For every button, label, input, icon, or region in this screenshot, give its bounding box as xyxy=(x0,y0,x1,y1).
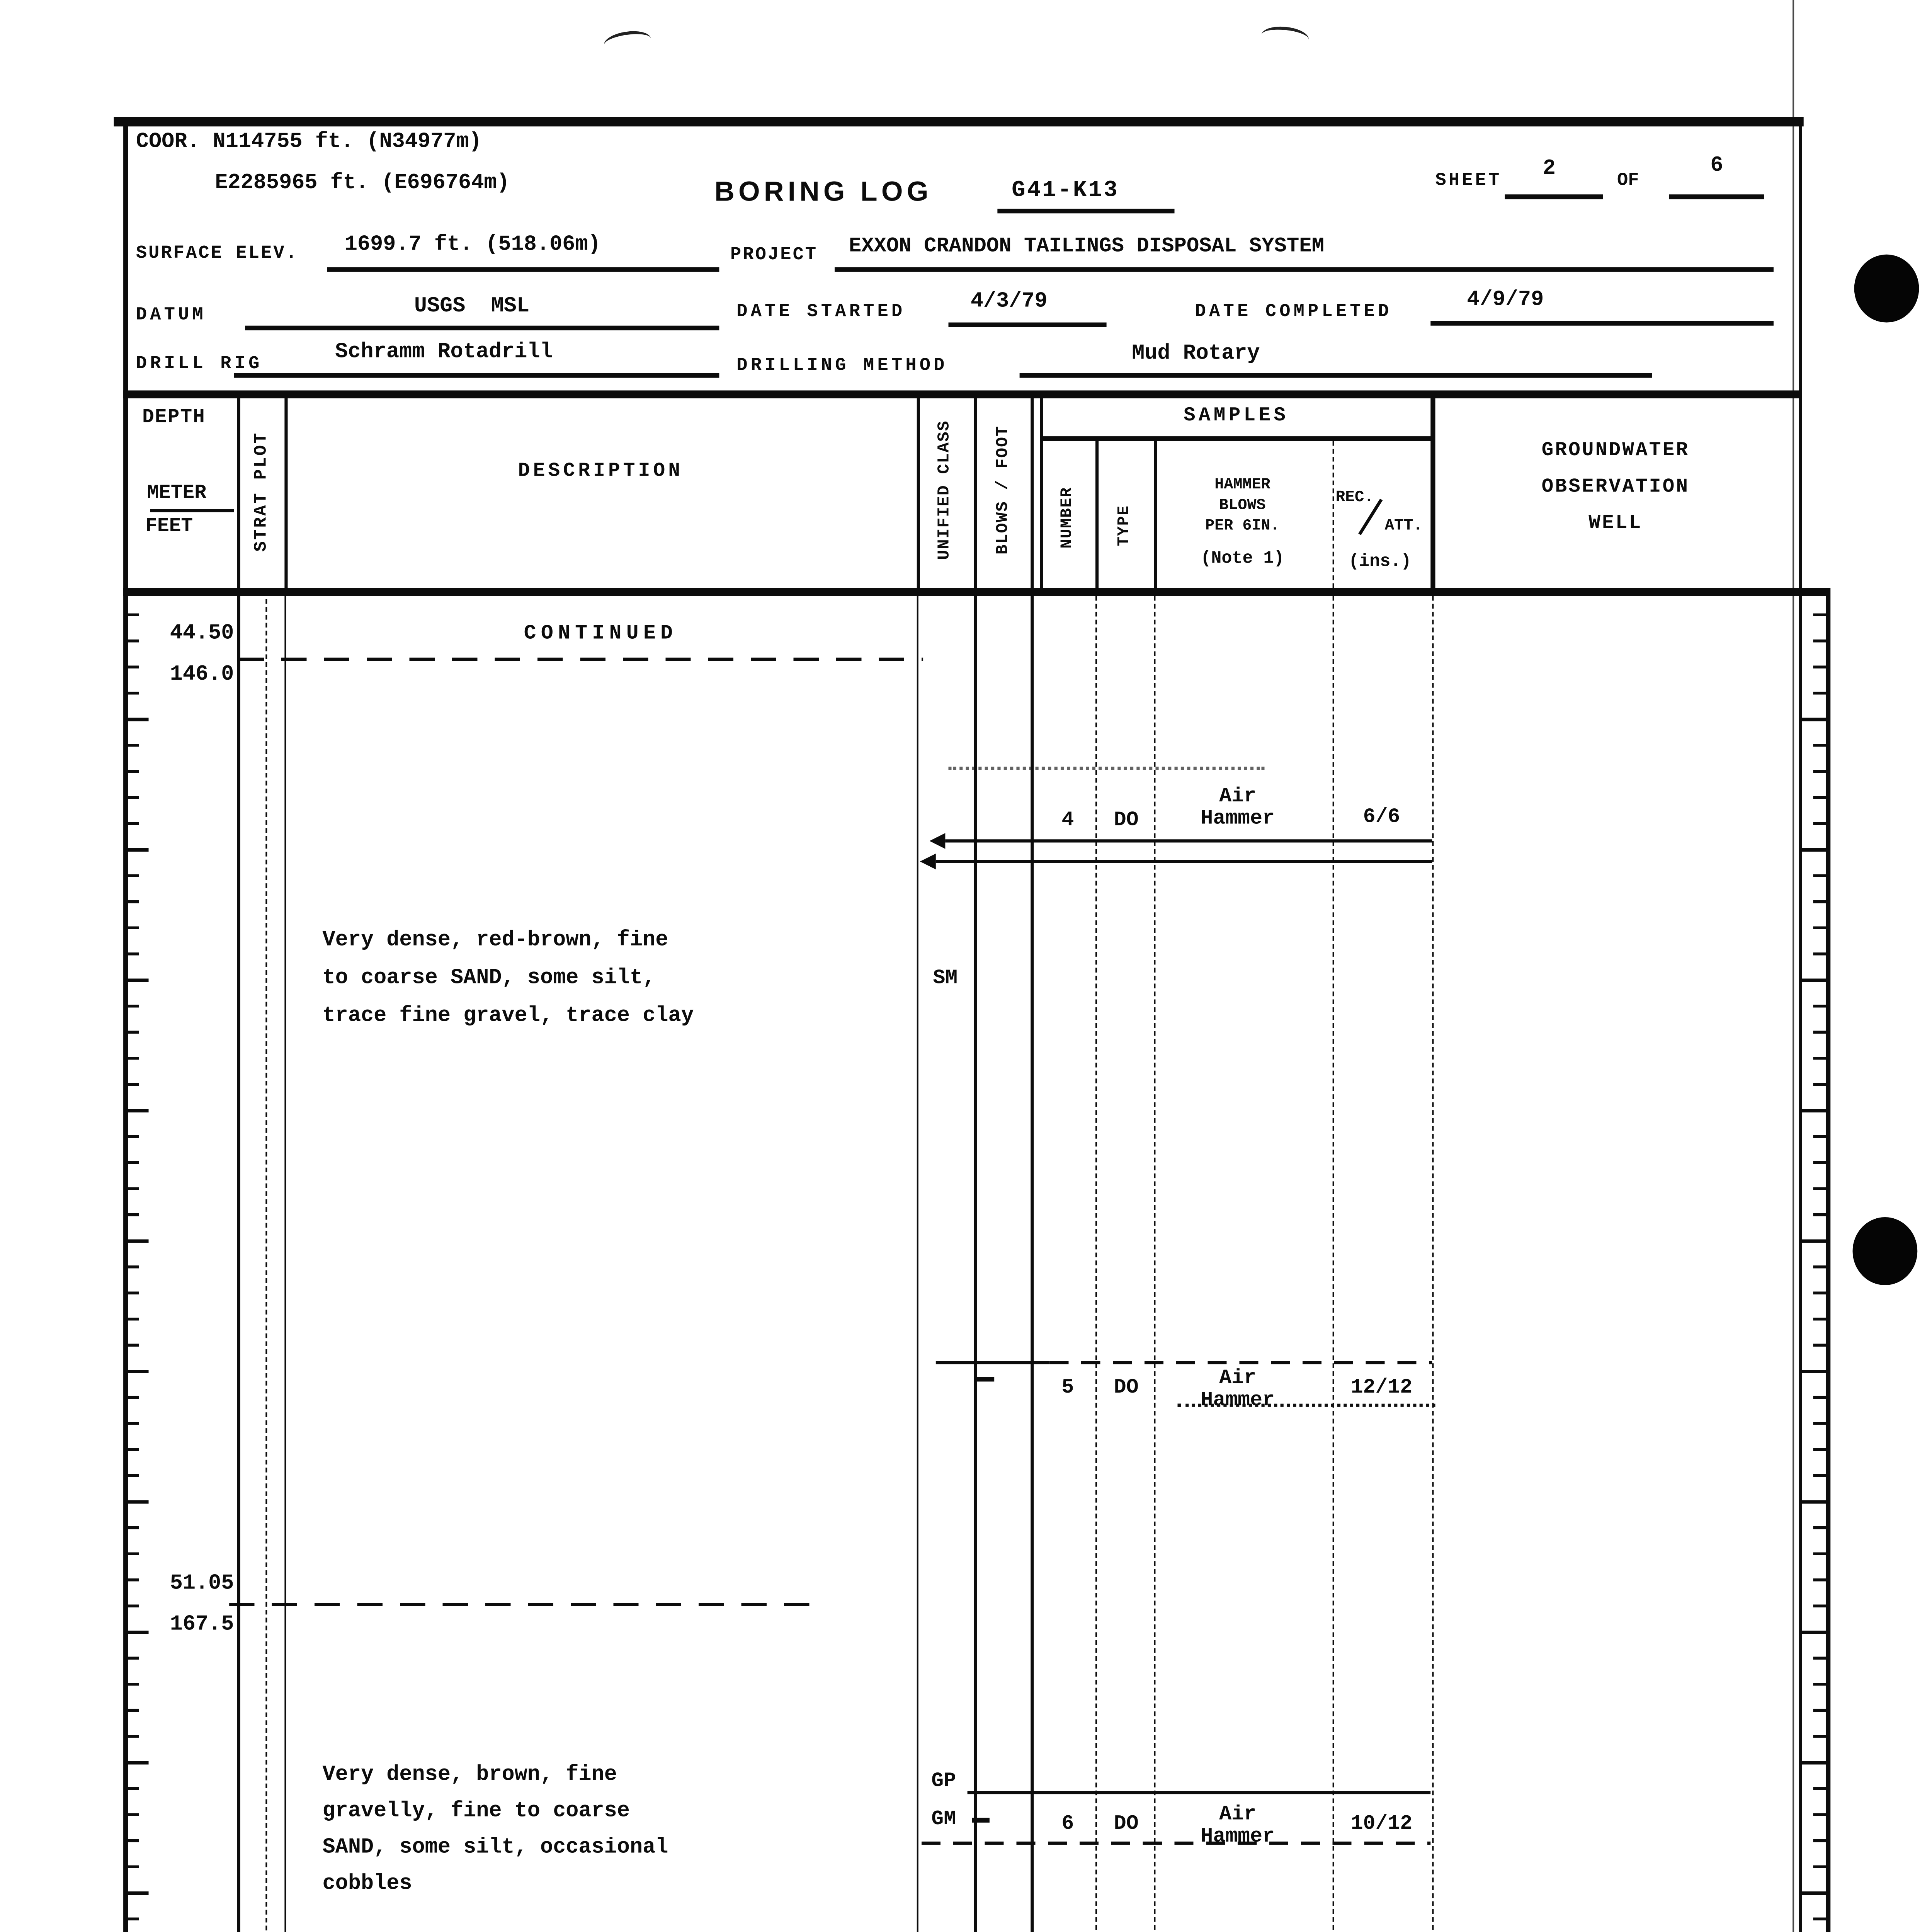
stratum-boundary-line-2 xyxy=(229,1603,822,1607)
number-header: NUMBER xyxy=(1060,439,1077,597)
stratum-boundary-line-1 xyxy=(239,658,923,662)
table-border-right xyxy=(1798,117,1802,1932)
feet-header: FEET xyxy=(145,517,232,539)
sample6-line-upper xyxy=(968,1790,1431,1794)
date-completed-value: 4/9/79 xyxy=(1467,291,1544,315)
meter-feet-divider xyxy=(150,509,234,513)
col-divider-type-hammer xyxy=(1154,441,1156,588)
col-divider-depth-strat xyxy=(237,398,240,588)
date-started-underline xyxy=(949,323,1107,327)
stratum2-desc-line1: Very dense, brown, fine xyxy=(323,1766,617,1789)
of-label: OF xyxy=(1617,172,1639,192)
samples-box-left xyxy=(1040,398,1044,588)
depth-feet-2: 167.5 xyxy=(133,1616,234,1639)
body-hammer-rec-line xyxy=(1333,596,1334,1932)
drill-rig-underline xyxy=(234,373,719,378)
continued-top-label: CONTINUED xyxy=(442,623,759,645)
sample5-hammer-line2: Hammer xyxy=(1159,1389,1317,1412)
date-completed-label: DATE COMPLETED xyxy=(1195,303,1392,323)
col-divider-unified-blows xyxy=(974,398,977,588)
boring-id-underline xyxy=(997,209,1174,214)
sample4-type: DO xyxy=(1097,810,1155,832)
hammer-note: (Note 1) xyxy=(1163,550,1321,569)
col-divider-number-type xyxy=(1095,441,1098,588)
sample4-arrow-upper xyxy=(929,832,945,848)
date-started-value: 4/3/79 xyxy=(971,293,1048,316)
sheet-total: 6 xyxy=(1710,156,1723,180)
rec-label: REC. xyxy=(1336,490,1374,507)
groundwater-line1: GROUNDWATER xyxy=(1458,441,1774,463)
hammer-blows-line1: HAMMER xyxy=(1163,477,1321,494)
sample4-line-lower xyxy=(936,859,1432,863)
sample6-dashed-underline xyxy=(922,1842,1430,1845)
sample5-dotted-underline xyxy=(1178,1404,1435,1407)
unified-class-header: UNIFIED CLASS xyxy=(936,387,955,593)
samples-underline xyxy=(1040,436,1434,442)
surface-elev-underline xyxy=(327,267,719,271)
hammer-blows-line2: BLOWS xyxy=(1163,498,1321,515)
sample5-hammer-line1: Air xyxy=(1159,1367,1317,1390)
datum-underline xyxy=(245,326,719,331)
col-divider-blows-samples xyxy=(1031,398,1034,588)
sample6-rec-att: 10/12 xyxy=(1340,1813,1423,1835)
groundwater-line3: WELL xyxy=(1458,514,1774,536)
depth-meters-2: 51.05 xyxy=(133,1575,234,1598)
sample6-hammer-line1: Air xyxy=(1159,1804,1317,1826)
sample5-line-solid xyxy=(936,1361,1050,1364)
groundwater-line2: OBSERVATION xyxy=(1458,477,1774,499)
drilling-method-value: Mud Rotary xyxy=(1132,345,1260,368)
sample4-hammer-line1: Air xyxy=(1159,786,1317,808)
description-header: DESCRIPTION xyxy=(364,462,838,483)
stratum1-desc-line3: trace fine gravel, trace clay xyxy=(323,1007,694,1031)
sample5-blows-dash xyxy=(977,1377,994,1381)
project-value: EXXON CRANDON TAILINGS DISPOSAL SYSTEM xyxy=(849,236,1324,259)
meter-header: METER xyxy=(147,484,234,505)
sample4-rec-att: 6/6 xyxy=(1347,806,1416,828)
datum-label: DATUM xyxy=(136,307,206,327)
sample4-line-upper xyxy=(945,838,1432,842)
date-started-label: DATE STARTED xyxy=(736,303,905,323)
drilling-method-label: DRILLING METHOD xyxy=(736,357,947,378)
sheet-total-underline xyxy=(1669,194,1764,199)
stratum2-desc-line2: gravelly, fine to coarse xyxy=(323,1802,630,1826)
depth-meters-1: 44.50 xyxy=(133,624,234,648)
faint-dotted-line xyxy=(949,767,1265,770)
stratum2-unified-class-line1: GP xyxy=(918,1770,969,1793)
body-number-type-line xyxy=(1095,596,1097,1932)
left-ruler-major-ticks xyxy=(126,718,148,1932)
project-underline xyxy=(835,267,1774,272)
stratum2-desc-line3: SAND, some silt, occasional xyxy=(323,1838,668,1862)
column-header-bottom-rule xyxy=(123,588,1830,596)
type-header: TYPE xyxy=(1117,447,1134,605)
surface-elev-value: 1699.7 ft. (518.06m) xyxy=(345,236,601,259)
depth-feet-1: 146.0 xyxy=(133,665,234,689)
body-strat-desc-line xyxy=(284,596,286,1932)
sheet-number: 2 xyxy=(1543,160,1556,183)
body-rec-groundwater-line xyxy=(1431,596,1433,1932)
datum-value: USGS MSL xyxy=(414,297,529,321)
sample5-number: 5 xyxy=(1040,1377,1095,1399)
body-unified-blows-line xyxy=(974,596,976,1932)
stratum1-unified-class: SM xyxy=(920,968,971,990)
drill-rig-value: Schramm Rotadrill xyxy=(335,343,553,367)
sample4-hammer-line2: Hammer xyxy=(1159,808,1317,830)
header-bottom-rule xyxy=(123,390,1802,398)
fold-line xyxy=(1793,0,1794,1932)
project-label: PROJECT xyxy=(730,247,818,267)
scanned-boring-log-page: COOR. N114755 ft. (N34977m) E2285965 ft.… xyxy=(0,0,1932,1932)
sample5-rec-att: 12/12 xyxy=(1340,1377,1423,1399)
body-type-hammer-line xyxy=(1154,596,1155,1932)
stratum2-desc-line4: cobbles xyxy=(323,1875,412,1898)
stratum1-desc-line2: to coarse SAND, some silt, xyxy=(323,969,656,993)
hole-punch-top xyxy=(1854,255,1919,323)
sample5-line-dashed xyxy=(1049,1361,1432,1364)
drill-rig-label: DRILL RIG xyxy=(136,355,263,376)
body-strat-dashed-line xyxy=(265,599,266,1932)
sheet-label: SHEET xyxy=(1435,172,1502,192)
att-label: ATT. xyxy=(1385,519,1423,536)
blows-foot-header: BLOWS / FOOT xyxy=(994,387,1013,593)
coordinates-line1: COOR. N114755 ft. (N34977m) xyxy=(136,133,482,156)
page-title: BORING LOG xyxy=(714,177,932,207)
sample6-blows-dash xyxy=(972,1818,990,1823)
sample4-number: 4 xyxy=(1040,810,1095,832)
hole-punch-middle xyxy=(1853,1217,1918,1285)
right-ruler-major-ticks xyxy=(1802,718,1827,1932)
body-blows-samples-line xyxy=(1031,596,1034,1932)
boring-id: G41-K13 xyxy=(1012,180,1119,205)
depth-header: DEPTH xyxy=(142,408,234,429)
strat-plot-header: STRAT PLOT xyxy=(253,389,272,594)
rec-att-unit: (ins.) xyxy=(1325,553,1435,572)
body-depth-strat-line xyxy=(237,596,240,1932)
col-divider-strat-desc xyxy=(284,398,287,588)
drilling-method-underline xyxy=(1020,373,1652,378)
samples-header: SAMPLES xyxy=(1078,406,1394,428)
pen-squiggle-right xyxy=(1260,24,1310,50)
col-divider-desc-unified xyxy=(917,398,920,588)
date-completed-underline xyxy=(1430,321,1774,325)
pen-squiggle-left xyxy=(603,29,653,56)
sample6-type: DO xyxy=(1097,1813,1155,1835)
coordinates-line2: E2285965 ft. (E696764m) xyxy=(215,174,509,197)
surface-elev-label: SURFACE ELEV. xyxy=(136,245,298,265)
stratum2-unified-class-line2: GM xyxy=(918,1808,969,1831)
sample5-type: DO xyxy=(1097,1377,1155,1399)
sample6-number: 6 xyxy=(1040,1813,1095,1835)
hammer-blows-line3: PER 6IN. xyxy=(1163,519,1321,536)
body-desc-unified-line xyxy=(917,596,919,1932)
stratum1-desc-line1: Very dense, red-brown, fine xyxy=(323,931,668,955)
table-border-top xyxy=(114,117,1804,127)
sheet-number-underline xyxy=(1505,194,1603,199)
sample4-arrow-lower xyxy=(920,853,936,869)
